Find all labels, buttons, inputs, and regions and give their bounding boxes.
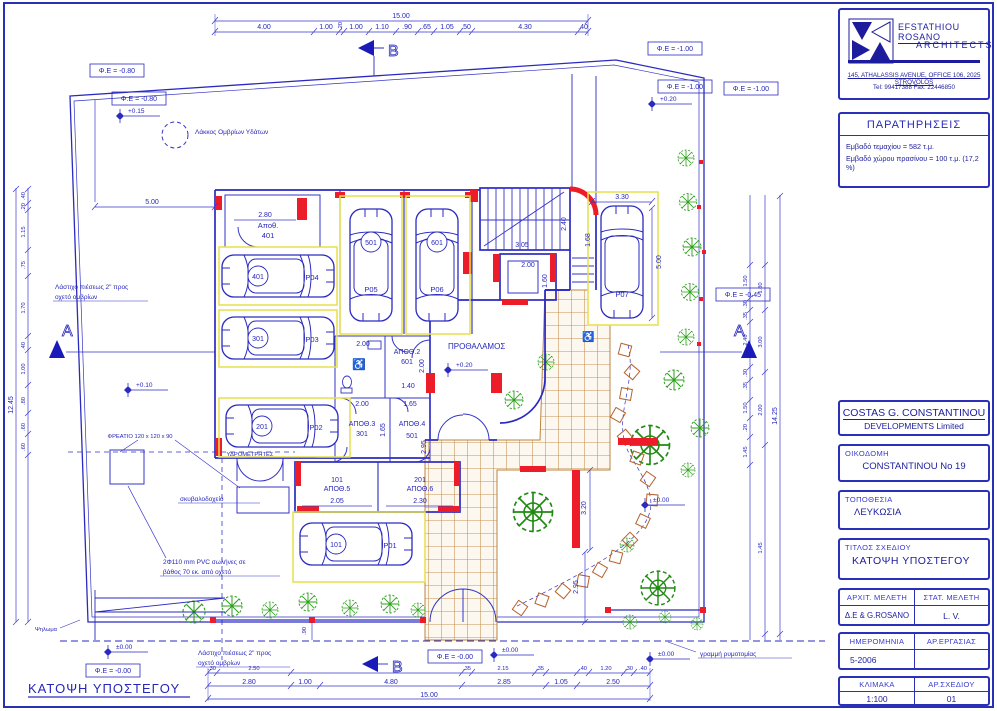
remarks-block: ΠΑΡΑΤΗΡΗΣΕΙΣ Εμβαδό τεμαχίου = 582 τ.μ. … (838, 112, 990, 188)
dim-label: .90 (302, 627, 308, 635)
room-name: Αποθ. (258, 221, 279, 230)
manhole-box (110, 450, 144, 484)
room-num: 601 (401, 359, 413, 366)
stall-id: P07 (615, 290, 628, 299)
dim-label: .20 (21, 203, 27, 211)
stall-id: P05 (364, 285, 377, 294)
dim-label: 1.15 (21, 226, 27, 237)
scale-value: 1:100 (840, 692, 914, 706)
dim-label: 2.00 (521, 262, 535, 269)
date-block: ΗΜΕΡΟΜΗΝΙΑ ΑΡ.ΕΡΓΑΣΙΑΣ 5-2006 (838, 632, 990, 670)
dim-label: 1.50 (743, 275, 749, 286)
remarks-title: ΠΑΡΑΤΗΡΗΣΕΙΣ (840, 114, 988, 136)
dim-label: .75 (21, 261, 27, 269)
hose-note: Λάστιχο πιέσεως 2" προς (198, 649, 271, 657)
dim-label: 1.70 (21, 302, 27, 313)
dim-label: 2.85 (497, 679, 511, 686)
dim-label: .50 (461, 24, 471, 31)
arch-study-label: ΑΡΧΙΤ. ΜΕΛΕΤΗ (840, 590, 914, 606)
level-value: ±0.00 (653, 497, 670, 504)
struct-study-label: ΣΤΑΤ. ΜΕΛΕΤΗ (914, 590, 988, 606)
studies-block: ΑΡΧΙΤ. ΜΕΛΕΤΗ ΣΤΑΤ. ΜΕΛΕΤΗ Δ.Ε & G.ROSAN… (838, 588, 990, 626)
bin-box (237, 487, 289, 513)
unit-tag: 301 (252, 336, 264, 343)
dim-label: .35 (536, 666, 544, 672)
room-num: 501 (406, 433, 418, 440)
dim-label: .20 (743, 424, 749, 432)
dim-label: .35 (743, 382, 749, 390)
firm-type: ARCHITECTS (916, 40, 994, 50)
dim-label: .20 (338, 22, 344, 30)
date-value: 5-2006 (840, 650, 914, 670)
level-value: +0.10 (136, 382, 153, 389)
dim-label: 1.10 (375, 24, 389, 31)
drawing-number-value: 01 (914, 692, 988, 706)
dim-label: 1.00 (319, 24, 333, 31)
rain-pit-circle (162, 122, 188, 148)
client-block: COSTAS G. CONSTANTINOU DEVELOPMENTS Limi… (838, 400, 990, 436)
dim-label: 2.95 (573, 580, 580, 594)
fe-value: Φ.Ε = -0.80 (99, 68, 135, 75)
fe-value: Φ.Ε = -0.45 (725, 292, 761, 299)
drawing-title-block: ΤΙΤΛΟΣ ΣΧΕΔΙΟΥ ΚΑΤΟΨΗ ΥΠΟΣΤΕΓΟΥ (838, 538, 990, 580)
staircase (480, 188, 570, 250)
section-letter-a: A (734, 323, 745, 340)
wheelchair-icon: ♿ (352, 358, 366, 371)
dim-label: 2.80 (242, 679, 256, 686)
dim-label: .40 (578, 24, 588, 31)
pvc-note: βάθος 70 εκ. από οχετό (163, 568, 231, 576)
fe-value: Φ.Ε = -1.00 (657, 46, 693, 53)
date-label: ΗΜΕΡΟΜΗΝΙΑ (840, 634, 914, 650)
stall-id: P06 (430, 285, 443, 294)
room-num: 101 (331, 477, 343, 484)
dim-label: 1.20 (600, 666, 611, 672)
dim-label: 2.80 (258, 212, 272, 219)
bin-label: σκυβαλοδοχείο (180, 495, 224, 503)
drawing-number-label: ΑΡ.ΣΧΕΔΙΟΥ (914, 678, 988, 692)
fe-value: Φ.Ε = -0.00 (437, 654, 473, 661)
dim-label: .60 (21, 423, 27, 431)
dim-label: 1.45 (743, 446, 749, 457)
room-name: ΑΠΟΘ.6 (407, 486, 434, 493)
dim-label: 2.05 (330, 498, 344, 505)
scale-block: ΚΛΙΜΑΚΑ ΑΡ.ΣΧΕΔΙΟΥ 1:100 01 (838, 676, 990, 706)
dim-label: 2.15 (497, 666, 508, 672)
stall-id: P03 (305, 335, 318, 344)
dim-label: 1.40 (401, 383, 415, 390)
dim-label: .80 (21, 397, 27, 405)
stall-id: P01 (383, 541, 396, 550)
dim-label: 3.20 (581, 501, 588, 515)
unit-tag: 201 (256, 424, 268, 431)
pvc-note: 2Φ110 mm PVC σωλήνες σε (163, 559, 246, 566)
client-sub: DEVELOPMENTS Limited (840, 419, 988, 431)
stall-id: P02 (309, 423, 322, 432)
dim-label: 1.00 (298, 679, 312, 686)
arch-study-value: Δ.Ε & G.ROSANO (840, 606, 914, 626)
dim-label: 1.45 (758, 542, 764, 553)
level-value: +0.15 (128, 108, 145, 115)
dim-label: 1.50 (743, 402, 749, 413)
dim-label: 3.30 (615, 194, 629, 201)
firm-logo-icon (848, 18, 894, 64)
step-label: Ψηλωμα (35, 627, 58, 633)
level-value: ±0.00 (116, 644, 133, 651)
room-name: ΑΠΟΘ.3 (349, 421, 376, 428)
fe-value: Φ.Ε = -0.00 (95, 668, 131, 675)
street-line-label: γραμμή ρυμοτομίας (700, 650, 756, 658)
building-value: CONSTANTINOU Νο 19 (840, 459, 988, 476)
location-block: ΤΟΠΟΘΕΣΙΑ ΛΕΥΚΩΣΙΑ (838, 490, 990, 530)
dimension-chain-bottom: .30 2.50 .35 2.15 .35 .40 1.20 .30 .40 2… (205, 666, 653, 702)
drawing-caption: ΚΑΤΟΨΗ ΥΠΟΣΤΕΓΟΥ (28, 681, 190, 697)
unit-tag: 401 (252, 274, 264, 281)
remarks-line: Εμβαδό τεμαχίου = 582 τ.μ. (840, 136, 988, 152)
water-meters-label: ΥΔΡΟΜΕΤΡΗΤΕΣ (227, 452, 274, 458)
dim-label: 4.80 (384, 679, 398, 686)
location-label: ΤΟΠΟΘΕΣΙΑ (840, 492, 988, 505)
dim-label: .90 (402, 24, 412, 31)
hose-note: Λάστιχο πιέσεως 2" προς (55, 283, 128, 291)
fe-value: Φ.Ε = -1.00 (667, 84, 703, 91)
dim-label: 2.00 (758, 404, 764, 415)
drawing-title-label: ΤΙΤΛΟΣ ΣΧΕΔΙΟΥ (840, 540, 988, 553)
dim-label: .35 (463, 666, 471, 672)
vestibule-label: ΠΡΟΘΑΛΑΜΟΣ (448, 342, 505, 351)
client-name: COSTAS G. CONSTANTINOU (843, 407, 986, 420)
dim-label: .35 (743, 312, 749, 320)
dim-label: 5.00 (656, 255, 663, 269)
room-num: 401 (262, 231, 275, 240)
dim-label: .40 (579, 666, 587, 672)
stall-id: P04 (305, 273, 318, 282)
wheelchair-icon: ♿ (582, 330, 594, 343)
dimension-chain-right: 1.50 .30 .35 2.40 .30 .35 1.50 .20 1.45 … (743, 193, 783, 640)
dim-label: 1.68 (585, 233, 592, 247)
location-value: ΛΕΥΚΩΣΙΑ (840, 505, 988, 522)
unit-tag: 101 (330, 542, 342, 549)
scale-label: ΚΛΙΜΑΚΑ (840, 678, 914, 692)
dim-label: 15.00 (420, 692, 438, 699)
remarks-line: Εμβαδό χώρου πρασίνου = 100 τ.μ. (17,2 %… (840, 152, 988, 174)
drawing-title-value: ΚΑΤΟΨΗ ΥΠΟΣΤΕΓΟΥ (840, 553, 988, 571)
dim-label: 1.65 (380, 423, 387, 437)
level-value: +0.20 (456, 362, 473, 369)
dim-label: .40 (639, 666, 647, 672)
dim-label: 3.05 (515, 242, 529, 249)
dim-label: 5.00 (145, 199, 159, 206)
dim-label: 4.00 (257, 24, 271, 31)
level-value: ±0.00 (658, 651, 675, 658)
drawing-sheet: ♿ ♿ (0, 0, 997, 711)
job-number-label: ΑΡ.ΕΡΓΑΣΙΑΣ (914, 634, 988, 650)
fe-value: Φ.Ε = -1.00 (733, 86, 769, 93)
room-name: ΑΠΟΘ.4 (399, 421, 426, 428)
manhole-label: ΦΡΕΑΤΙΟ 120 x 120 x 90 (107, 434, 172, 440)
dim-label: 3.00 (758, 336, 764, 347)
dim-label: 1.60 (542, 274, 549, 288)
dim-label: .30 (625, 666, 633, 672)
dim-label: 1.05 (554, 679, 568, 686)
dim-label: 12.45 (8, 396, 15, 414)
architect-logo-block: EFSTATHIOU ROSANO ARCHITECTS 145, ATHALA… (838, 8, 990, 100)
dim-label: .40 (21, 342, 27, 350)
dim-label: 2.40 (561, 217, 568, 231)
hose-note: οχετό ομβρίων (198, 659, 240, 667)
dim-label: 2.95 (421, 440, 428, 454)
dim-label: 4.30 (518, 24, 532, 31)
section-letter-b: B (388, 43, 399, 60)
firm-contact: Tel: 99417388 Fax: 22446850 (840, 84, 988, 91)
room-num: 301 (356, 431, 368, 438)
dim-label: 2.00 (419, 359, 426, 373)
section-letter-a: A (62, 323, 73, 340)
dim-label: 2.30 (413, 498, 427, 505)
unit-tag: 601 (431, 240, 443, 247)
dim-label: 2.50 (606, 679, 620, 686)
dim-label: 14.25 (772, 407, 779, 425)
room-name: ΑΠΟΘ.5 (324, 486, 351, 493)
building-label: ΟΙΚΟΔΟΜΗ (840, 446, 988, 459)
fe-value: Φ.Ε = -0.80 (121, 96, 157, 103)
dim-label: 1.65 (403, 401, 417, 408)
hose-note: οχετό ομβρίων (55, 293, 97, 301)
dim-label: .60 (21, 443, 27, 451)
unit-tag: 501 (365, 240, 377, 247)
room-num: 201 (414, 477, 426, 484)
dim-label: 2.00 (356, 341, 370, 348)
dimension-chain-left: .40 .20 1.15 .75 1.70 .40 1.00 .80 .60 .… (8, 186, 31, 625)
logo-rule (848, 60, 980, 63)
rain-pit-label: Λάκκος Ομβρίων Υδάτων (195, 128, 268, 136)
room-name: ΑΠΟΘ.2 (394, 349, 421, 356)
job-number-value (914, 650, 988, 670)
dimension-chain-top: 15.00 4.00 1.00 .20 1.00 1.10 .90 .65 1.… (212, 13, 591, 36)
section-letter-b: B (392, 659, 403, 676)
building-block: ΟΙΚΟΔΟΜΗ CONSTANTINOU Νο 19 (838, 444, 990, 482)
dim-label: .30 (743, 369, 749, 377)
level-value: ±0.00 (502, 647, 519, 654)
dim-label: 2.00 (355, 401, 369, 408)
dim-label: 1.05 (440, 24, 454, 31)
floor-plan-drawing: ♿ ♿ (0, 0, 831, 711)
dim-label: 15.00 (392, 13, 410, 20)
level-value: +0.20 (660, 96, 677, 103)
dim-label: .40 (21, 192, 27, 200)
caption-text: ΚΑΤΟΨΗ ΥΠΟΣΤΕΓΟΥ (28, 681, 180, 696)
dim-label: 1.00 (21, 363, 27, 374)
struct-study-value: L. V. (914, 606, 988, 626)
dim-label: .65 (421, 24, 431, 31)
dim-label: 1.00 (349, 24, 363, 31)
